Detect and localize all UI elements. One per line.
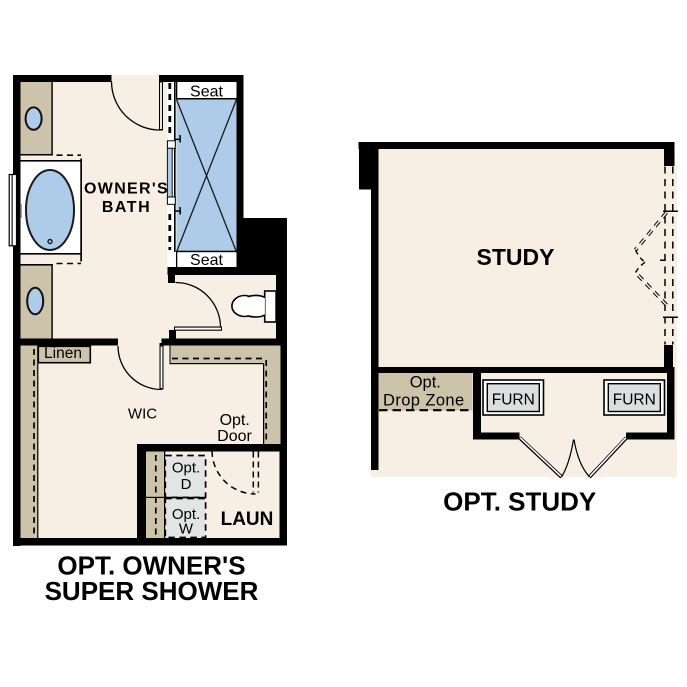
- svg-text:Door: Door: [217, 428, 252, 445]
- svg-text:FURN: FURN: [492, 392, 535, 409]
- svg-text:WIC: WIC: [128, 406, 157, 423]
- svg-text:FURN: FURN: [613, 392, 656, 409]
- svg-text:Seat: Seat: [190, 84, 223, 101]
- svg-text:SUPER SHOWER: SUPER SHOWER: [45, 576, 259, 606]
- svg-text:W: W: [179, 521, 194, 538]
- svg-text:Seat: Seat: [190, 252, 223, 269]
- svg-text:D: D: [181, 476, 192, 493]
- svg-text:OWNER'S: OWNER'S: [84, 181, 169, 198]
- svg-text:LAUN: LAUN: [221, 509, 274, 530]
- svg-text:BATH: BATH: [102, 199, 151, 216]
- svg-text:Opt.: Opt.: [410, 374, 441, 392]
- svg-text:OPT. STUDY: OPT. STUDY: [443, 487, 596, 517]
- svg-text:Linen: Linen: [44, 345, 82, 362]
- svg-text:Opt.: Opt.: [220, 412, 250, 429]
- svg-text:STUDY: STUDY: [477, 244, 555, 270]
- svg-text:Opt.: Opt.: [172, 460, 200, 477]
- svg-text:Drop Zone: Drop Zone: [383, 392, 465, 410]
